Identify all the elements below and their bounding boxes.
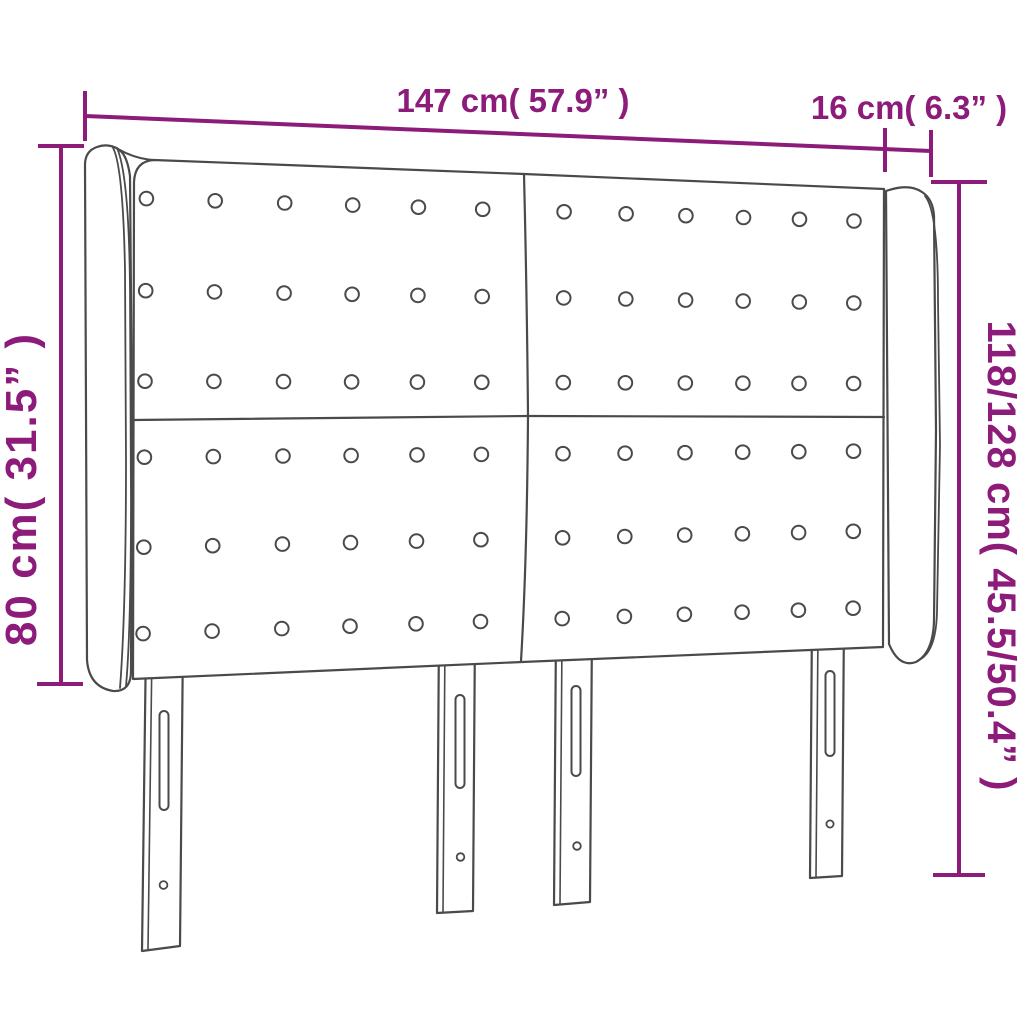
tufting-button [206, 539, 220, 553]
right-wing [886, 187, 940, 663]
tufting-button [736, 376, 750, 390]
tufting-button [847, 377, 861, 391]
tufting-button [410, 534, 424, 548]
tufting-button [737, 211, 751, 225]
leg-3-slot [572, 686, 581, 776]
tufting-button [557, 291, 571, 305]
tufting-button [847, 296, 861, 310]
tufting-button [207, 375, 221, 389]
tufting-button [411, 375, 425, 389]
leg-2-hole [457, 853, 465, 861]
tufting-button [678, 608, 692, 622]
tufting-button [474, 615, 488, 629]
tufting-button [276, 537, 290, 551]
tufting-button [792, 377, 806, 391]
tufting-button [138, 374, 152, 388]
leg-1-hole [160, 881, 168, 889]
tufting-button [208, 285, 222, 299]
tufting-button [277, 375, 291, 389]
tufting-button [793, 295, 807, 309]
tufting-button [847, 525, 861, 539]
tufting-button [475, 448, 489, 462]
tufting-button [679, 376, 693, 390]
headboard-height-label: 80 cm( 31.5” ) [0, 332, 46, 646]
tufting-button [678, 446, 692, 460]
tufting-button [278, 196, 292, 210]
tufting-button [793, 213, 807, 227]
tufting-button [137, 540, 151, 554]
tufting-button [556, 531, 570, 545]
leg-4-slot [826, 671, 835, 756]
tufting-button [136, 627, 150, 641]
leg-2 [437, 628, 475, 913]
tufting-button [139, 284, 153, 298]
tufting-button [792, 603, 806, 617]
diagram-svg: 147 cm( 57.9” ) 16 cm( 6.3” ) 80 cm( 31.… [0, 0, 1024, 1024]
tufting-button [847, 214, 861, 228]
tufting-button [345, 375, 359, 389]
tufting-button [555, 612, 569, 626]
tufting-button [138, 450, 152, 464]
tufting-button [345, 288, 359, 302]
tufting-button [557, 376, 571, 390]
tufting-button [475, 290, 489, 304]
ear-depth-label: 16 cm( 6.3” ) [811, 89, 1007, 126]
tufting-button [678, 528, 692, 542]
headboard-dimension-diagram: 147 cm( 57.9” ) 16 cm( 6.3” ) 80 cm( 31.… [0, 0, 1024, 1024]
leg-1 [142, 638, 183, 951]
tufting-button [736, 445, 750, 459]
width-label: 147 cm( 57.9” ) [397, 82, 630, 119]
tufting-button [140, 192, 154, 206]
tufting-button [846, 601, 860, 615]
tufting-button [735, 605, 749, 619]
tufting-button [679, 209, 693, 223]
tufting-button [619, 292, 633, 306]
tufting-button [343, 619, 357, 633]
tufting-button [736, 527, 750, 541]
tufting-button [736, 294, 750, 308]
leg-3-hole [573, 842, 581, 850]
tufting-button [346, 198, 360, 212]
tufting-button [412, 200, 426, 214]
tufting-button [619, 207, 633, 221]
tufting-button [205, 624, 219, 638]
leg-3 [554, 628, 592, 905]
tufting-button [557, 205, 571, 219]
leg-4-hole [826, 820, 833, 827]
tufting-button [476, 203, 490, 217]
tufting-button [275, 622, 289, 636]
tufting-button [344, 449, 358, 463]
tufting-button [619, 376, 633, 390]
tufting-button [277, 286, 291, 300]
tufting-button [618, 530, 632, 544]
leg-4 [810, 618, 844, 878]
total-height-label: 118/128 cm( 45.5/50.4” ) [979, 321, 1023, 792]
tufting-button [207, 450, 221, 464]
tufting-button [344, 536, 358, 550]
tufting-button [847, 444, 861, 458]
tufting-button [276, 449, 290, 463]
tufting-button [792, 526, 806, 540]
tufting-button [556, 447, 570, 461]
tufting-button [475, 376, 489, 390]
tufting-button [474, 533, 488, 547]
leg-1-slot [160, 711, 169, 810]
leg-2-slot [456, 695, 465, 788]
tufting-button [411, 289, 425, 303]
tufting-button [410, 448, 424, 462]
tufting-button [618, 446, 632, 460]
tufting-button [618, 610, 632, 624]
tufting-button [409, 617, 423, 631]
tufting-button [679, 293, 693, 307]
tufting-button [208, 194, 222, 208]
tufting-button [792, 445, 806, 459]
